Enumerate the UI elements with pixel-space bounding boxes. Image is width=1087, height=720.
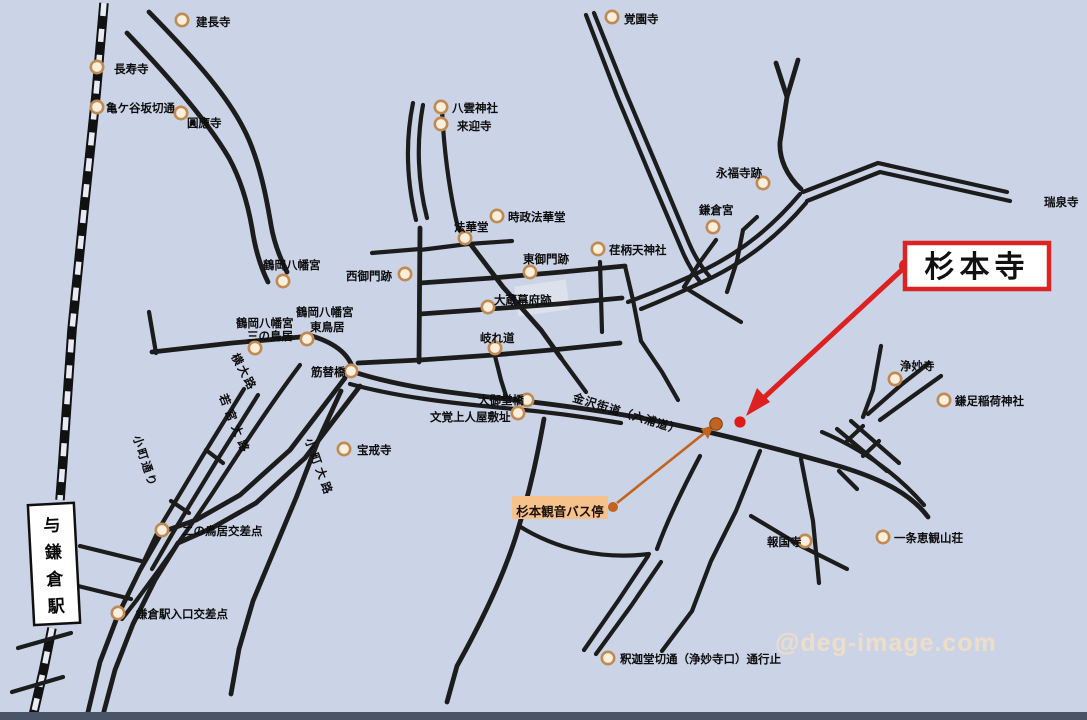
kamakura-station: 与鎌倉駅 xyxy=(28,503,80,625)
poi-label: 鶴岡八幡宮 xyxy=(263,258,321,272)
landmark: 長寿寺 xyxy=(91,61,149,76)
landmark: 大御堂橋 xyxy=(478,393,533,407)
bottom-border xyxy=(0,712,1087,720)
road xyxy=(420,266,625,283)
bus-stop-label: 杉本観音バス停 xyxy=(512,496,608,519)
landmark: 八雲神社 xyxy=(435,101,499,115)
map-canvas: 杉本寺 杉本観音バス停 与鎌倉駅 建長寺長寿寺亀ケ谷坂切通圓應寺覚園寺八雲神社来… xyxy=(0,0,1087,720)
poi-circle xyxy=(338,443,350,455)
road xyxy=(776,63,801,189)
poi-circle xyxy=(112,607,124,619)
poi-circle xyxy=(491,210,503,222)
road xyxy=(600,262,602,332)
landmark: 宝戒寺 xyxy=(338,443,392,457)
road-name-label: 金沢街道（六浦道） xyxy=(570,390,683,437)
road xyxy=(684,287,741,322)
road xyxy=(447,419,544,702)
road xyxy=(662,611,692,651)
poi-circle xyxy=(592,243,604,255)
poi-circle xyxy=(877,531,889,543)
poi-circle xyxy=(91,61,103,73)
poi-label: 大御堂橋 xyxy=(478,393,524,407)
poi-label: 二の鳥居交差点 xyxy=(182,524,263,538)
poi-label: 大蔵幕府跡 xyxy=(494,293,552,307)
landmark: 法華堂 xyxy=(454,220,489,244)
landmark: 釈迦堂切通（浄妙寺口）通行止 xyxy=(602,652,782,666)
poi-label: 浄妙寺 xyxy=(900,359,935,373)
bus-stop-text: 杉本観音バス停 xyxy=(516,504,604,519)
landmark: 鶴岡八幡宮三の鳥居 xyxy=(236,316,294,354)
poi-label: 鶴岡八幡宮 xyxy=(296,305,354,319)
watermark: @deg-image.com xyxy=(775,629,997,657)
poi-label: 東鳥居 xyxy=(310,320,345,334)
poi-circle xyxy=(606,11,618,23)
poi-label: 鶴岡八幡宮 xyxy=(236,316,294,330)
road xyxy=(641,341,678,400)
road xyxy=(863,441,879,456)
landmark: 鎌倉宮 xyxy=(698,203,734,233)
road xyxy=(78,586,131,599)
bus-stop-dot xyxy=(710,418,723,431)
road xyxy=(847,426,863,441)
landmark: 荏柄天神社 xyxy=(592,243,667,257)
poi-label: 法華堂 xyxy=(454,220,489,234)
landmark: 報国寺 xyxy=(767,535,811,549)
road xyxy=(408,103,416,220)
poi-circle xyxy=(301,333,313,345)
poi-label: 瑞泉寺 xyxy=(1044,195,1079,209)
poi-label: 覚園寺 xyxy=(624,12,659,26)
poi-circle xyxy=(482,301,494,313)
poi-label: 岐れ道 xyxy=(480,331,515,345)
poi-label: 東御門跡 xyxy=(523,252,569,266)
road xyxy=(657,456,700,549)
landmark: 来迎寺 xyxy=(435,118,492,133)
poi-circle xyxy=(707,221,719,233)
landmark: 建長寺 xyxy=(176,14,231,29)
poi-label: 文覚上人屋敷址 xyxy=(430,410,511,424)
road-wakamiya-oji xyxy=(88,378,345,712)
poi-label: 鎌足稲荷神社 xyxy=(954,394,1024,408)
road xyxy=(743,217,757,230)
poi-label: 長寿寺 xyxy=(114,62,149,76)
road xyxy=(495,356,507,399)
landmark: 覚園寺 xyxy=(606,11,659,26)
road xyxy=(372,249,420,253)
kamakura-map: 杉本寺 杉本観音バス停 与鎌倉駅 建長寺長寿寺亀ケ谷坂切通圓應寺覚園寺八雲神社来… xyxy=(0,0,1087,720)
poi-circle xyxy=(602,652,614,664)
road xyxy=(692,451,760,611)
poi-label: 西御門跡 xyxy=(346,269,392,283)
poi-circle xyxy=(435,101,447,113)
poi-label: 亀ケ谷坂切通 xyxy=(106,101,175,115)
landmark: 岐れ道 xyxy=(480,331,515,354)
poi-label: 釈迦堂切通（浄妙寺口）通行止 xyxy=(620,652,781,666)
landmark: 浄妙寺 xyxy=(889,359,935,385)
road xyxy=(801,459,819,583)
poi-circle xyxy=(175,107,187,119)
road-name-label: 横大路 xyxy=(228,351,259,393)
road xyxy=(419,105,427,218)
road xyxy=(584,556,648,650)
road xyxy=(837,429,887,471)
landmark: 永福寺跡 xyxy=(715,166,769,189)
road xyxy=(594,13,710,277)
road-labels-layer: 横大路小町通り若宮大路小町大路金沢街道（六浦道） xyxy=(130,351,683,499)
poi-label: 三の鳥居 xyxy=(247,329,293,343)
callout-box: 杉本寺 xyxy=(905,243,1049,289)
road xyxy=(586,15,701,283)
poi-circle xyxy=(399,268,411,280)
poi-circle xyxy=(277,275,289,287)
landmark: 一条恵観山荘 xyxy=(877,531,964,545)
landmark: 亀ケ谷坂切通 xyxy=(91,101,176,115)
poi-label: 宝戒寺 xyxy=(357,443,392,457)
road xyxy=(596,562,661,654)
road-name-label: 小町通り xyxy=(130,433,160,490)
bus-label-dot xyxy=(608,502,618,512)
landmark: 鶴岡八幡宮 xyxy=(263,258,321,287)
road xyxy=(839,471,857,489)
road xyxy=(519,526,649,556)
poi-circle xyxy=(91,101,103,113)
callout-pointer xyxy=(746,259,913,416)
poi-label: 建長寺 xyxy=(196,15,231,29)
poi-circle xyxy=(435,118,447,130)
road-kanazawa-kaido xyxy=(354,372,928,517)
landmark: 時政法華堂 xyxy=(491,210,566,224)
poi-circle xyxy=(249,342,261,354)
poi-circle xyxy=(345,365,357,377)
poi-label: 来迎寺 xyxy=(456,119,492,133)
poi-label: 鎌倉宮 xyxy=(698,203,734,217)
poi-circle xyxy=(889,373,901,385)
landmarks-layer: 建長寺長寿寺亀ケ谷坂切通圓應寺覚園寺八雲神社来迎寺永福寺跡鎌倉宮瑞泉寺時政法華堂… xyxy=(91,11,1079,666)
road xyxy=(787,60,798,97)
callout-label: 杉本寺 xyxy=(925,251,1030,284)
poi-label: 時政法華堂 xyxy=(508,210,566,224)
poi-circle xyxy=(512,407,524,419)
poi-label: 報国寺 xyxy=(767,535,802,549)
poi-label: 圓應寺 xyxy=(187,116,222,130)
landmark: 西御門跡 xyxy=(346,268,411,283)
road xyxy=(561,358,586,392)
poi-label: 永福寺跡 xyxy=(715,166,762,180)
poi-label: 筋替橋 xyxy=(310,365,346,379)
bus-stop-pointer xyxy=(608,425,714,512)
road xyxy=(152,395,258,569)
road xyxy=(80,546,141,561)
poi-circle xyxy=(938,394,950,406)
poi-label: 鎌倉駅入口交差点 xyxy=(135,607,228,621)
poi-circle xyxy=(524,266,536,278)
landmark: 瑞泉寺 xyxy=(1044,195,1079,209)
poi-circle xyxy=(156,524,168,536)
poi-label: 一条恵観山荘 xyxy=(894,531,963,545)
landmark: 鎌足稲荷神社 xyxy=(938,394,1025,408)
road-komachi-dori xyxy=(122,365,300,619)
poi-label: 八雲神社 xyxy=(451,101,498,115)
landmark: 筋替橋 xyxy=(310,365,357,379)
sugimotodera-dot xyxy=(734,416,745,427)
poi-label: 荏柄天神社 xyxy=(609,243,667,257)
poi-circle xyxy=(176,14,188,26)
road xyxy=(149,312,156,353)
